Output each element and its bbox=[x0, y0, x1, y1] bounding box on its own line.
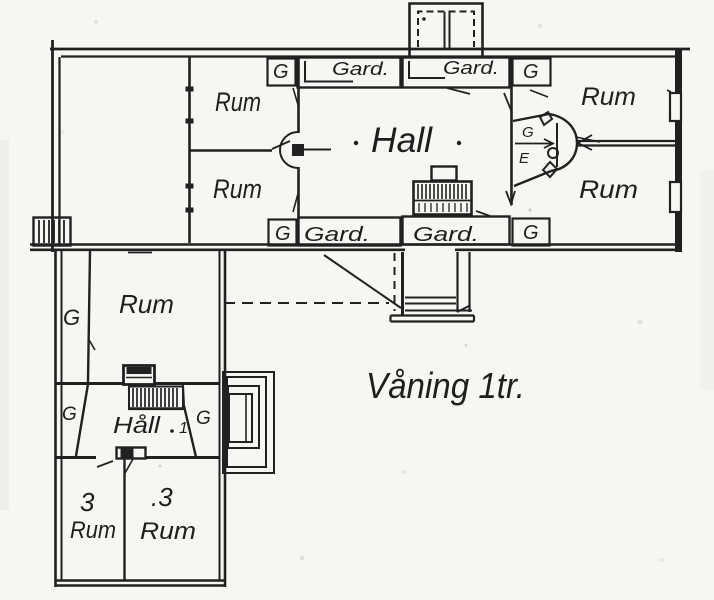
svg-text:Rum: Rum bbox=[579, 176, 638, 204]
svg-text:Rum: Rum bbox=[213, 174, 262, 204]
svg-text:E: E bbox=[519, 150, 530, 167]
svg-text:G: G bbox=[273, 61, 289, 83]
svg-text:G: G bbox=[523, 222, 539, 244]
svg-text:Våning 1tr.: Våning 1tr. bbox=[366, 365, 525, 406]
svg-text:Rum: Rum bbox=[581, 83, 636, 111]
svg-text:Gard.: Gard. bbox=[443, 58, 499, 78]
svg-text:Rum: Rum bbox=[70, 517, 116, 544]
svg-text:Rum: Rum bbox=[140, 518, 196, 545]
svg-text:1: 1 bbox=[179, 420, 188, 437]
svg-text:.3: .3 bbox=[151, 482, 173, 512]
svg-text:Gard.: Gard. bbox=[413, 224, 479, 246]
svg-text:G: G bbox=[523, 61, 539, 83]
svg-text:G: G bbox=[63, 305, 80, 330]
svg-text:G: G bbox=[196, 408, 211, 429]
svg-text:G: G bbox=[522, 124, 534, 141]
svg-text:G: G bbox=[62, 404, 77, 425]
svg-text:Hall: Hall bbox=[371, 121, 433, 160]
svg-text:Rum: Rum bbox=[215, 87, 261, 117]
svg-text:Rum: Rum bbox=[119, 289, 174, 319]
svg-text:3: 3 bbox=[80, 487, 95, 517]
svg-text:G: G bbox=[275, 223, 291, 245]
svg-text:Gard.: Gard. bbox=[304, 224, 370, 246]
svg-text:Håll: Håll bbox=[113, 412, 161, 438]
svg-text:Gard.: Gard. bbox=[332, 59, 389, 79]
